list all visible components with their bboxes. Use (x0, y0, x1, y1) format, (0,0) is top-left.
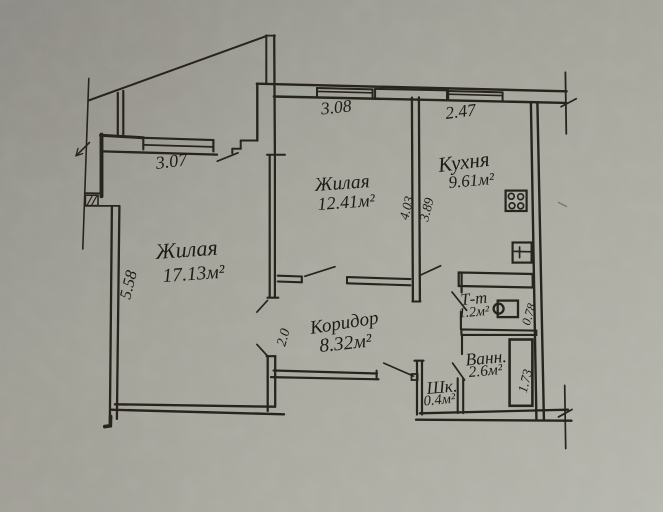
svg-text:0.4м²: 0.4м² (423, 391, 457, 410)
svg-text:2.47: 2.47 (444, 99, 478, 123)
svg-text:1.2м²: 1.2м² (458, 304, 491, 322)
svg-text:17.13м²: 17.13м² (162, 262, 227, 287)
svg-text:9.61м²: 9.61м² (448, 169, 496, 192)
svg-text:2.6м²: 2.6м² (468, 361, 504, 381)
svg-text:3.08: 3.08 (319, 95, 353, 118)
svg-text:12.41м²: 12.41м² (317, 190, 376, 214)
svg-text:Жилая: Жилая (154, 235, 219, 264)
svg-text:3.07: 3.07 (154, 149, 190, 173)
